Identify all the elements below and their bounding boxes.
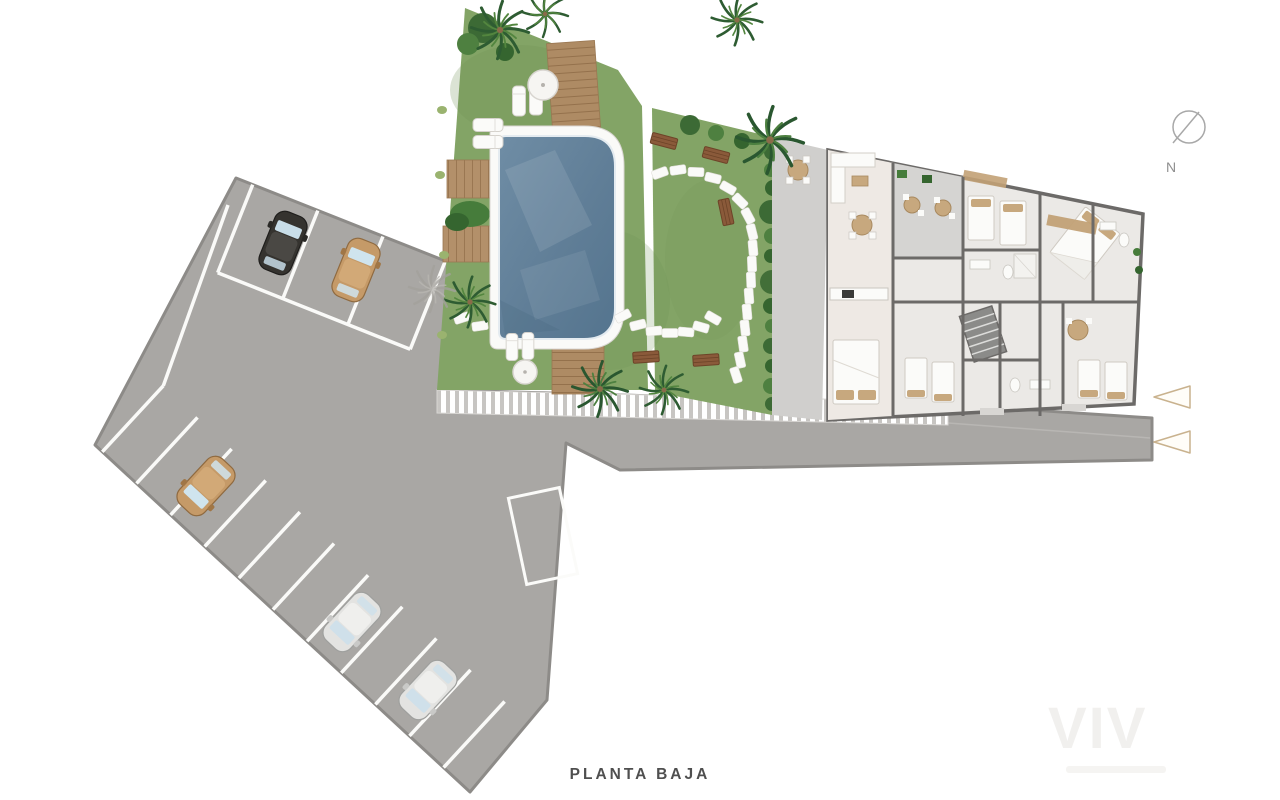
entry-step-1 [980, 408, 1004, 415]
swimming-pool [490, 126, 624, 349]
site-plan: N VIV PLANTA BAJA [0, 0, 1280, 800]
watermark-tagline [1066, 766, 1166, 773]
floor-plan-page: N VIV PLANTA BAJA [0, 0, 1280, 800]
entry-step-2 [1062, 404, 1086, 411]
watermark-logo: VIV [1048, 696, 1148, 761]
north-label: N [1166, 159, 1176, 175]
plan-title: PLANTA BAJA [570, 766, 711, 783]
